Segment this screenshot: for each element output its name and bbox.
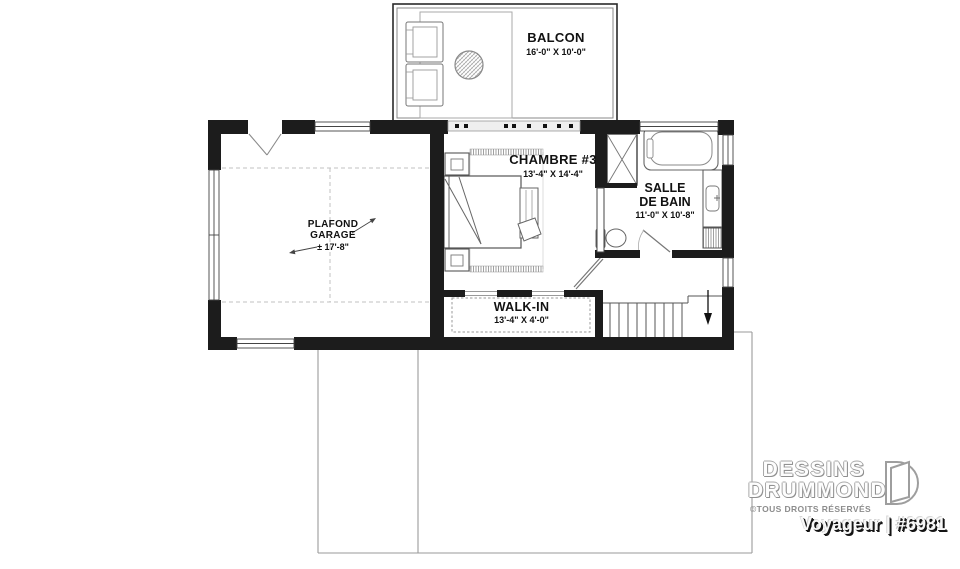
- stairs-down-arrow-icon: [704, 290, 712, 325]
- armchair-icon: [406, 64, 443, 106]
- room-label-garage: PLAFOND GARAGE ± 17'-8": [283, 219, 383, 252]
- room-dims: 11'-0" X 10'-8": [615, 210, 715, 220]
- brand-name-line2: DRUMMOND: [748, 480, 880, 501]
- rights-notice: ©TOUS DROITS RÉSERVÉS: [750, 504, 890, 514]
- nightstand: [445, 249, 469, 271]
- brand-name: DESSINS DRUMMOND: [748, 459, 880, 501]
- window: [237, 339, 294, 348]
- room-name: BALCON: [493, 31, 619, 46]
- window: [723, 135, 733, 165]
- room-name: GARAGE: [283, 230, 383, 241]
- room-name: WALK-IN: [459, 300, 584, 314]
- patio-door: [448, 121, 580, 131]
- plumbing-wall: [597, 188, 604, 252]
- lower-floor-outline: [318, 332, 752, 553]
- room-name: DE BAIN: [615, 195, 715, 209]
- room-dims: ± 17'-8": [283, 242, 383, 252]
- stairs: [601, 296, 722, 337]
- room-name: PLAFOND: [283, 219, 383, 230]
- round-table-icon: [455, 51, 483, 79]
- floor-plan-page: BALCON 16'-0" X 10'-0" CHAMBRE #3 13'-4"…: [0, 0, 960, 569]
- room-label-balcon: BALCON 16'-0" X 10'-0": [493, 31, 619, 57]
- room-label-walk-in: WALK-IN 13'-4" X 4'-0": [459, 300, 584, 325]
- nightstand: [445, 153, 469, 175]
- window: [315, 122, 370, 131]
- room-dims: 13'-4" X 14'-4": [490, 169, 616, 179]
- window: [209, 170, 219, 300]
- drummond-d-icon: [881, 457, 931, 507]
- bed: [444, 176, 521, 248]
- brand-name-line1: DESSINS: [748, 459, 880, 480]
- bathroom-door: [638, 230, 670, 252]
- room-dims: 13'-4" X 4'-0": [459, 315, 584, 325]
- room-label-chambre: CHAMBRE #3 13'-4" X 14'-4": [490, 153, 616, 179]
- garage-door-swing: [249, 134, 281, 155]
- room-name: SALLE: [615, 181, 715, 195]
- window: [640, 122, 718, 131]
- room-name: CHAMBRE #3: [490, 153, 616, 168]
- window: [723, 258, 733, 287]
- bedroom-door: [574, 257, 603, 289]
- room-label-salle-de-bain: SALLE DE BAIN 11'-0" X 10'-8": [615, 181, 715, 220]
- armchair-icon: [406, 22, 443, 62]
- room-dims: 16'-0" X 10'-0": [493, 47, 619, 57]
- linen-cabinet: [703, 228, 722, 248]
- bathtub: [644, 127, 718, 170]
- plan-title: Voyageur | #6981: [750, 514, 946, 535]
- balcony: [393, 4, 617, 122]
